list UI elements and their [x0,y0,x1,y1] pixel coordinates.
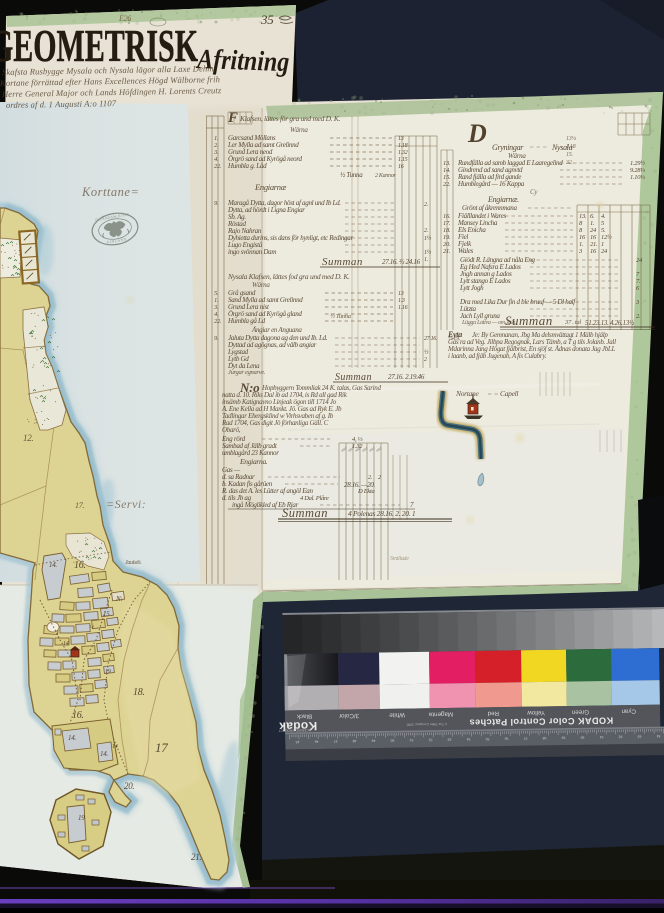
svg-text:Humblegård — 16 Kappa: Humblegård — 16 Kappa [457,180,525,188]
svg-text:White: White [389,711,405,718]
svg-text:61: 61 [599,735,603,739]
svg-text:58: 58 [542,736,546,740]
svg-text:Yellow: Yellow [527,709,545,716]
svg-text:ingo svönnan Dam: ingo svönnan Dam [228,248,276,256]
svg-text:48: 48 [352,739,356,743]
svg-text:Magenta: Magenta [428,710,453,717]
svg-text:14.: 14. [443,167,451,174]
svg-text:Obarö,: Obarö, [222,426,241,434]
svg-text:52: 52 [428,738,432,742]
svg-text:14.: 14. [49,561,57,569]
svg-text:14.: 14. [100,750,108,758]
svg-text:E26: E26 [118,14,131,23]
svg-text:Lytt Jogh: Lytt Jogh [459,284,484,292]
svg-text:Engiarna.: Engiarna. [239,457,268,466]
svg-text:1½: 1½ [424,235,432,242]
svg-text:18.: 18. [443,227,451,234]
svg-text:35: 35 [260,12,274,27]
svg-text:51: 51 [409,738,413,742]
svg-text:½ Tunna: ½ Tunna [330,313,351,320]
svg-text:15.: 15. [566,152,573,158]
svg-text:14.: 14. [68,734,76,742]
svg-text:57: 57 [523,736,527,740]
svg-text:7.: 7. [636,278,641,285]
svg-text:17: 17 [155,740,168,755]
svg-text:49: 49 [371,739,375,743]
svg-text:19.: 19. [443,234,451,241]
svg-text:12½: 12½ [601,234,612,241]
svg-text:3/Color: 3/Color [339,712,359,719]
svg-text:21.: 21. [191,852,201,862]
svg-text:9.: 9. [214,335,219,342]
svg-text:14: 14 [112,743,118,750]
svg-text:F: F [227,110,238,126]
svg-text:4 Polenas 28.16. 2. 20. 1: 4 Polenas 28.16. 2. 20. 1 [348,509,415,518]
svg-text:13.: 13. [579,213,587,220]
svg-text:1.29½: 1.29½ [630,160,645,167]
svg-text:62: 62 [618,735,622,739]
svg-text:37 . tal: 37 . tal [564,319,581,326]
svg-text:60: 60 [580,735,584,739]
svg-text:13¼: 13¼ [566,136,576,142]
svg-text:Smillade: Smillade [390,556,409,562]
svg-text:9.: 9. [214,200,219,207]
svg-text:1.: 1. [579,241,584,248]
svg-text:20.: 20. [124,781,134,791]
svg-text:Nysala: Nysala [551,143,573,152]
svg-text:ordres af d. 1 Augusti A:o 11: ordres af d. 1 Augusti A:o 1107 [6,98,117,110]
svg-text:27.16. ⅔ 24.16: 27.16. ⅔ 24.16 [382,258,421,266]
svg-text:Engiarnæ: Engiarnæ [254,182,287,192]
svg-text:13: 13 [398,291,404,297]
svg-text:Jurgar egnarve.: Jurgar egnarve. [228,369,266,376]
svg-text:Korttane=: Korttane= [81,185,139,199]
svg-text:1.32: 1.32 [398,150,408,156]
svg-text:12.: 12. [23,433,33,443]
svg-text:2 Kannor: 2 Kannor [375,173,396,179]
svg-text:22.: 22. [214,318,222,325]
svg-text:Humbla g. Låd: Humbla g. Låd [227,162,267,170]
svg-text:Summan: Summan [282,506,328,520]
svg-text:3.: 3. [213,149,219,156]
svg-text:56: 56 [504,737,508,741]
svg-text:2.: 2. [424,228,428,234]
svg-text:16.: 16. [74,560,86,571]
svg-text:55: 55 [485,737,489,741]
svg-text:1.: 1. [214,297,219,304]
svg-text:27.16. 2.19.46: 27.16. 2.19.46 [388,373,425,381]
svg-text:LICENSED PRODUCT: LICENSED PRODUCT [279,728,312,733]
svg-text:17.: 17. [443,220,451,227]
svg-text:1.: 1. [424,257,428,263]
svg-text:1.3: 1.3 [398,298,405,304]
svg-text:Capell: Capell [500,389,518,398]
svg-text:Nortane: Nortane [455,389,479,398]
svg-text:Cyan: Cyan [621,708,636,715]
svg-text:3.: 3. [213,304,219,311]
svg-text:1.16: 1.16 [398,305,408,311]
svg-text:13: 13 [398,136,404,142]
svg-text:Jach Lyll gruna: Jach Lyll gruna [460,312,500,320]
svg-text:Grönt af åkrennmana: Grönt af åkrennmana [462,204,518,212]
svg-text:1.10⅓: 1.10⅓ [630,174,645,181]
svg-text:46: 46 [315,740,319,744]
svg-text:Humbla gå Ld: Humbla gå Ld [227,317,266,325]
svg-text:22.: 22. [443,181,451,188]
svg-text:Engiarnæ.: Engiarnæ. [487,195,519,204]
svg-text:5.: 5. [601,227,606,234]
svg-text:Wales: Wales [458,247,474,255]
svg-text:63: 63 [637,734,641,738]
svg-text:Wärna: Wärna [290,126,308,134]
svg-text:N:: N: [115,595,122,603]
svg-text:21.: 21. [443,248,451,255]
svg-text:1½: 1½ [424,249,432,256]
svg-text:D: D [467,119,487,148]
svg-text:Ängiar en Anguana: Ängiar en Anguana [251,326,302,334]
svg-text:Jaulsiö.: Jaulsiö. [125,560,141,566]
svg-text:5.: 5. [214,290,219,297]
svg-text:Cy: Cy [530,188,538,196]
svg-text:4.: 4. [214,156,219,163]
svg-text:13.: 13. [443,160,451,167]
svg-text:20.: 20. [443,241,451,248]
svg-text:4 Dal. Plåre: 4 Dal. Plåre [300,495,329,502]
svg-text:½ Tunna: ½ Tunna [340,171,363,179]
svg-text:6.: 6. [590,213,595,220]
svg-text:2.: 2. [424,202,428,208]
svg-text:9.28⅓: 9.28⅓ [630,167,645,174]
svg-text:18.: 18. [133,687,145,698]
svg-text:2: 2 [424,357,427,363]
svg-text:1.18: 1.18 [398,143,408,149]
svg-text:15.: 15. [443,174,451,181]
svg-text:19: 19 [105,669,111,675]
svg-text:1: 1 [601,241,604,248]
svg-text:Green: Green [571,708,589,715]
svg-text:22.: 22. [214,163,222,170]
svg-text:53: 53 [447,737,451,741]
svg-text:47: 47 [333,739,337,743]
svg-text:50: 50 [390,738,394,742]
svg-text:1.: 1. [214,135,219,142]
svg-text:16.: 16. [72,710,84,721]
svg-text:Summan: Summan [335,372,372,383]
svg-text:Summan: Summan [505,313,553,328]
svg-text:i laanb, ad fjäb Jugenab, A f: i laanb, ad fjäb Jugenab, A fis Culabry. [448,352,547,360]
svg-text:21.: 21. [590,241,598,248]
svg-text:27.16.: 27.16. [424,336,437,342]
svg-text:Klafsen, lättes för gra und me: Klafsen, lättes för gra und med D. K. [239,114,341,123]
svg-text:17.: 17. [75,501,84,510]
svg-text:15: 15 [103,610,110,618]
svg-text:=Servi:: =Servi: [106,497,146,511]
svg-text:16.: 16. [443,213,451,220]
svg-text:64: 64 [656,734,660,738]
svg-text:1.15: 1.15 [398,157,408,163]
svg-text:14: 14 [63,640,69,647]
svg-text:© The Tiffen Company, 2000: © The Tiffen Company, 2000 [406,722,447,727]
svg-text:1.: 1. [590,220,595,227]
svg-text:Black: Black [296,713,312,720]
svg-text:2.: 2. [214,142,219,149]
svg-text:16: 16 [398,164,404,170]
svg-text:Gryningar: Gryningar [492,143,524,152]
svg-text:4.: 4. [601,213,606,220]
svg-text:Red: Red [487,710,499,717]
svg-text:4.: 4. [214,311,219,318]
svg-text:umblagård 23 Kannor: umblagård 23 Kannor [222,449,279,457]
svg-text:19: 19 [78,814,85,822]
svg-text:2: 2 [378,475,381,481]
svg-text:Wärna: Wärna [252,281,270,289]
svg-text:59: 59 [561,736,565,740]
svg-text:51.23.13. 4.26.13½: 51.23.13. 4.26.13½ [585,319,635,327]
svg-text:2.: 2. [636,313,641,320]
svg-text:Nysala Klafsen, lättes fod gra: Nysala Klafsen, lättes fod gra und med D… [227,272,350,281]
svg-text:45: 45 [296,740,300,744]
svg-text:Summan: Summan [322,256,363,268]
svg-text:4, ⅓: 4, ⅓ [352,436,363,443]
svg-text:54: 54 [466,737,470,741]
svg-text:D Ekta: D Ekta [357,488,374,495]
